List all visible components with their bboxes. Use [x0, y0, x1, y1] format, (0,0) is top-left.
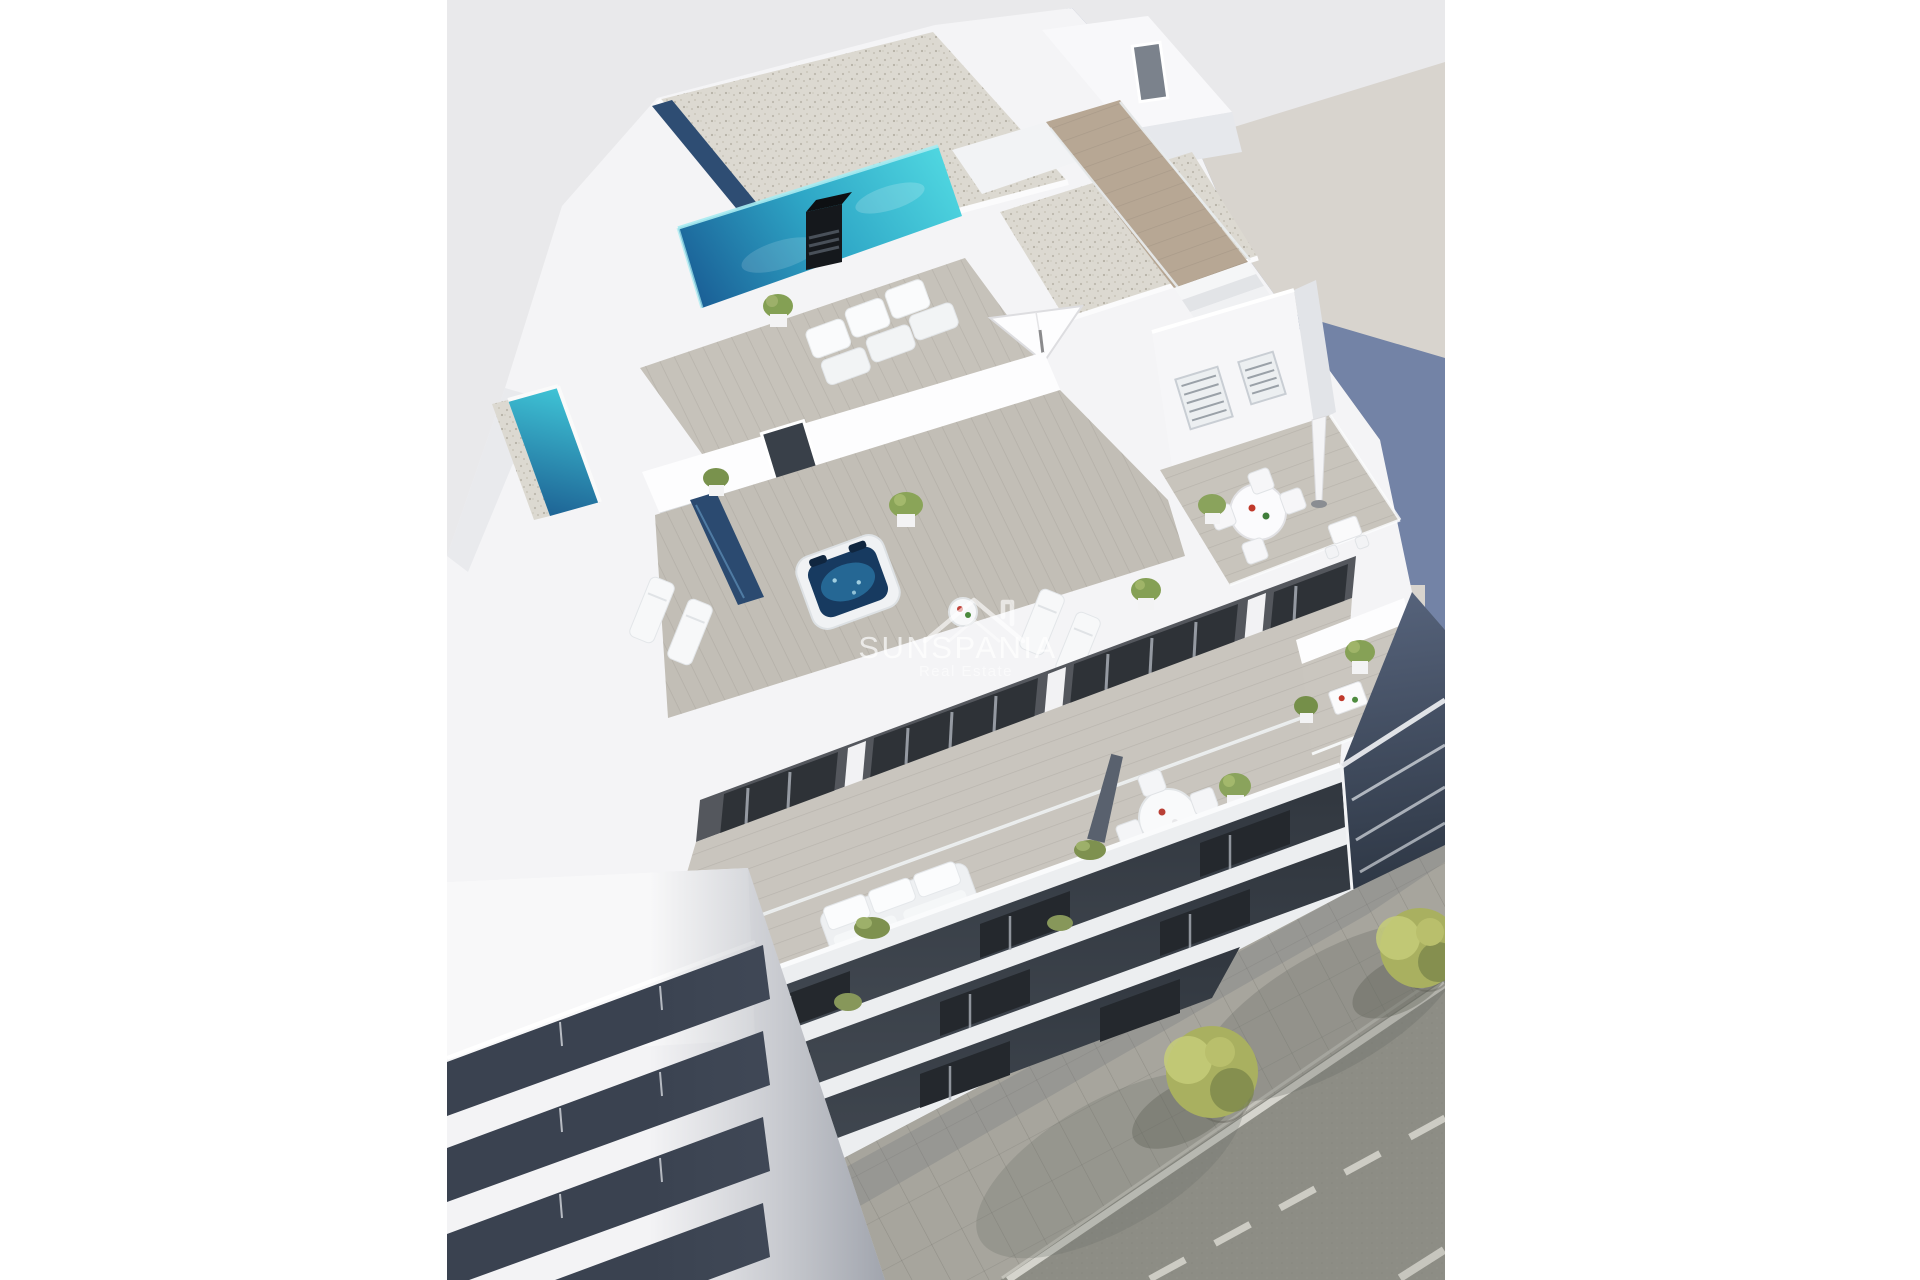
- property-render-image: SUNSPANIA Real Estate: [0, 0, 1920, 1280]
- watermark-title: SUNSPANIA: [858, 630, 1057, 665]
- watermark-subtitle: Real Estate: [919, 663, 1013, 680]
